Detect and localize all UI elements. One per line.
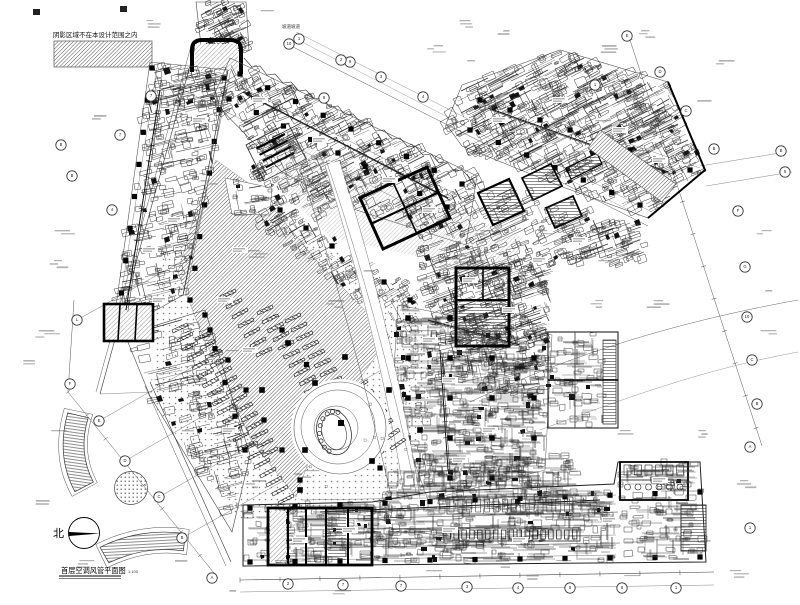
svg-text:C: C	[157, 494, 160, 499]
svg-text:北: 北	[53, 527, 64, 540]
svg-text:首层空调风管平面图: 首层空调风管平面图	[61, 566, 126, 575]
svg-text:B: B	[71, 173, 74, 178]
svg-text:B: B	[780, 148, 783, 153]
svg-text:F: F	[69, 381, 72, 386]
svg-text:D: D	[658, 69, 661, 74]
svg-text:G: G	[743, 264, 746, 269]
svg-text:B: B	[756, 401, 759, 406]
svg-text:阴影区域不在本设计范围之内: 阴影区域不在本设计范围之内	[53, 30, 138, 39]
svg-text:B: B	[60, 142, 63, 147]
svg-text:1:100: 1:100	[128, 569, 139, 574]
svg-text:E: E	[98, 418, 101, 423]
svg-text:B: B	[713, 146, 716, 151]
svg-text:10: 10	[745, 314, 750, 319]
svg-text:A: A	[749, 444, 752, 449]
svg-text:F: F	[737, 208, 740, 213]
svg-text:坡道坡道: 坡道坡道	[282, 23, 300, 30]
svg-text:A: A	[211, 575, 214, 580]
svg-text:C: C	[684, 108, 687, 113]
svg-text:C: C	[750, 357, 753, 362]
svg-text:B: B	[181, 535, 184, 540]
svg-text:D: D	[123, 458, 126, 463]
svg-text:10: 10	[287, 41, 292, 46]
svg-text:E: E	[626, 33, 629, 38]
